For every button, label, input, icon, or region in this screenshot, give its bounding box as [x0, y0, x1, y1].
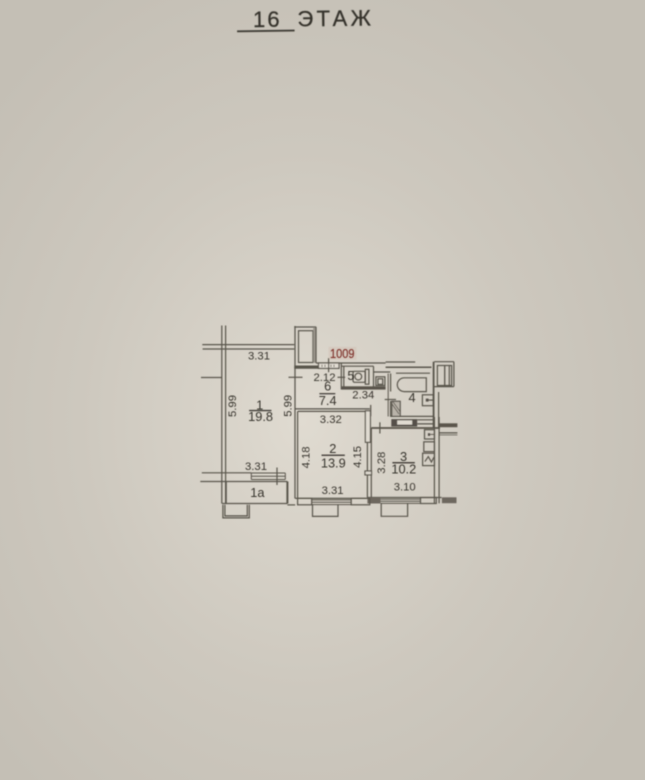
- svg-text:3.31: 3.31: [245, 461, 267, 473]
- svg-text:2.34: 2.34: [352, 390, 374, 402]
- svg-text:3.32: 3.32: [320, 414, 342, 426]
- svg-text:16: 16: [253, 7, 282, 32]
- svg-text:3.10: 3.10: [394, 481, 416, 493]
- svg-text:1009: 1009: [330, 346, 355, 361]
- svg-text:1a: 1a: [250, 485, 265, 500]
- svg-text:7.4: 7.4: [319, 393, 337, 408]
- svg-text:13.9: 13.9: [321, 455, 346, 470]
- svg-text:3.31: 3.31: [322, 485, 344, 497]
- svg-text:19.8: 19.8: [248, 409, 273, 424]
- svg-text:4: 4: [409, 390, 416, 405]
- svg-text:4.18: 4.18: [301, 446, 313, 468]
- svg-text:10.2: 10.2: [391, 462, 416, 477]
- svg-text:3.28: 3.28: [376, 452, 388, 474]
- svg-text:2: 2: [329, 441, 336, 456]
- svg-text:6: 6: [324, 378, 331, 393]
- svg-text:4.15: 4.15: [352, 446, 364, 468]
- svg-text:5.99: 5.99: [227, 395, 239, 417]
- svg-text:5: 5: [347, 368, 354, 383]
- svg-text:3.31: 3.31: [248, 351, 270, 363]
- svg-text:ЭТАЖ: ЭТАЖ: [297, 5, 374, 31]
- svg-text:5.99: 5.99: [283, 395, 295, 417]
